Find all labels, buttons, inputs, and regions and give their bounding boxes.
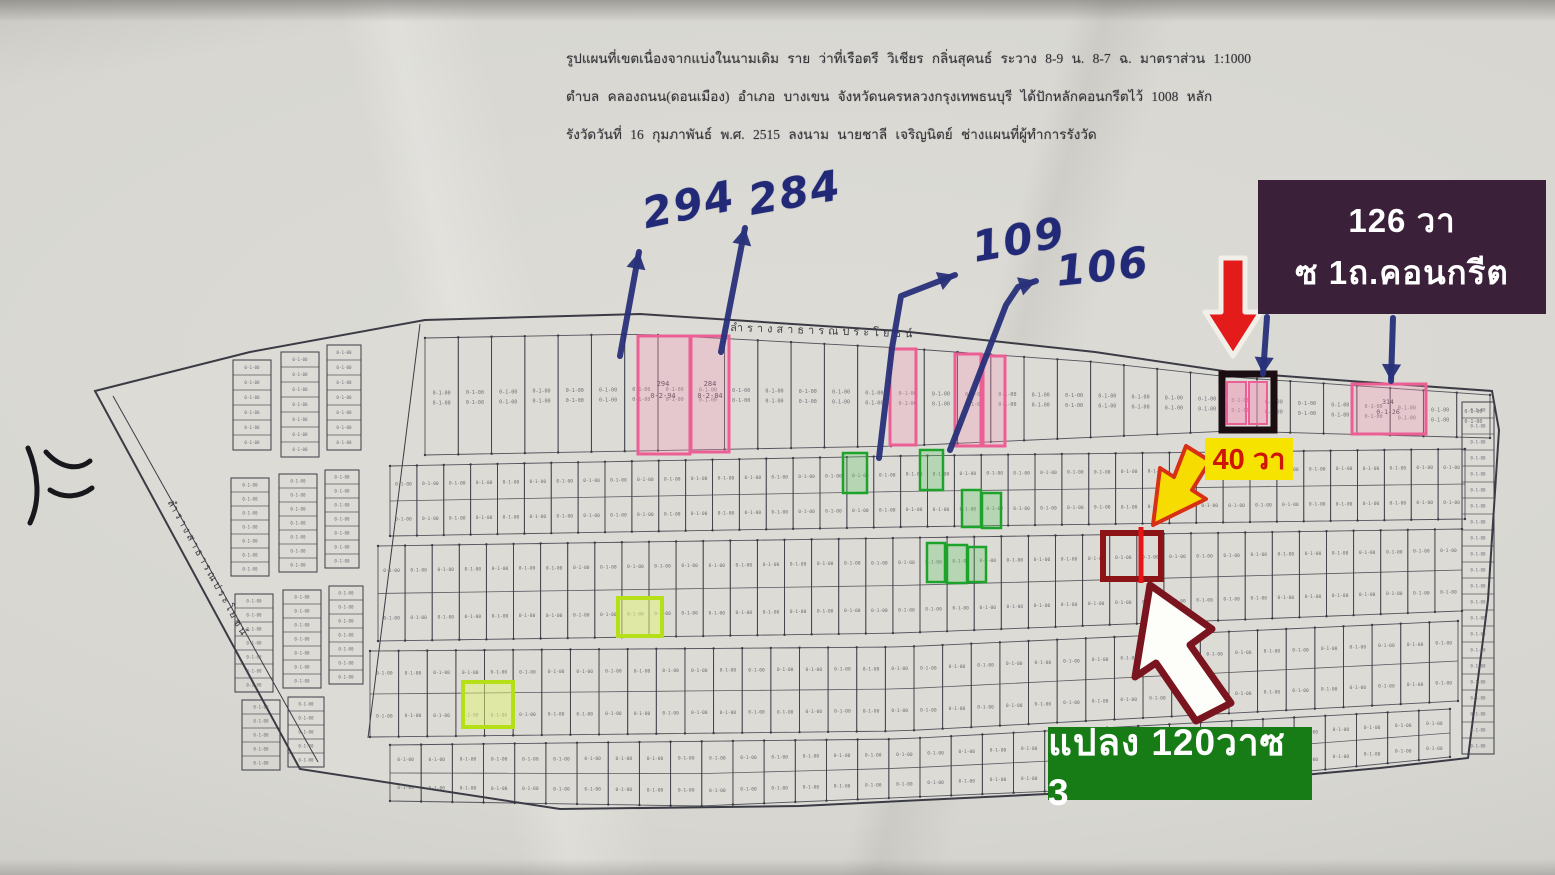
svg-text:0-1-00: 0-1-00 [246, 599, 262, 604]
svg-text:0-1-00: 0-1-00 [1098, 404, 1116, 410]
svg-text:0-1-00: 0-1-00 [1264, 689, 1281, 695]
svg-text:0-1-00: 0-1-00 [290, 563, 306, 568]
svg-text:0-1-00: 0-1-00 [1142, 555, 1159, 561]
svg-text:0-1-00: 0-1-00 [1032, 393, 1050, 399]
svg-text:0-1-00: 0-1-00 [898, 560, 915, 566]
svg-text:0-1-00: 0-1-00 [891, 666, 908, 672]
svg-text:0-1-00: 0-1-00 [1169, 554, 1186, 560]
svg-text:0-1-00: 0-1-00 [990, 747, 1007, 753]
svg-text:0-1-00: 0-1-00 [573, 565, 590, 571]
svg-text:0-1-00: 0-1-00 [1336, 501, 1353, 507]
svg-text:0-1-00: 0-1-00 [1132, 395, 1150, 401]
svg-text:0-1-00: 0-1-00 [246, 641, 262, 646]
svg-text:0-1-00: 0-1-00 [491, 757, 508, 763]
svg-text:0-1-00: 0-1-00 [338, 647, 354, 652]
svg-text:0-1-00: 0-1-00 [748, 710, 765, 716]
svg-text:0-1-00: 0-1-00 [691, 511, 708, 517]
svg-text:0-1-00: 0-1-00 [290, 549, 306, 554]
svg-text:0-1-00: 0-1-00 [376, 671, 393, 677]
svg-text:0-1-00: 0-1-00 [1395, 749, 1412, 755]
svg-text:0-1-00: 0-1-00 [338, 633, 354, 638]
svg-text:0-1-00: 0-1-00 [745, 475, 762, 481]
svg-text:0-1-00: 0-1-00 [336, 440, 352, 445]
svg-text:0-1-00: 0-1-00 [834, 667, 851, 673]
svg-text:0-1-00: 0-1-00 [298, 730, 314, 735]
svg-text:0-1-00: 0-1-00 [242, 553, 258, 558]
svg-text:0-1-00: 0-1-00 [466, 390, 484, 396]
svg-text:0-1-00: 0-1-00 [832, 400, 850, 406]
svg-text:0-1-00: 0-1-00 [292, 432, 308, 437]
svg-text:0-1-00: 0-1-00 [1349, 685, 1366, 691]
svg-text:0-1-00: 0-1-00 [476, 480, 493, 486]
svg-text:0-1-00: 0-1-00 [476, 515, 493, 521]
svg-text:0-1-00: 0-1-00 [244, 440, 260, 445]
callout-126wa-line1: 126 วา [1348, 195, 1455, 247]
svg-text:0-1-00: 0-1-00 [1228, 503, 1245, 509]
svg-text:0-1-00: 0-1-00 [428, 757, 445, 763]
svg-text:0-1-00: 0-1-00 [491, 786, 508, 792]
svg-text:0-1-00: 0-1-00 [662, 668, 679, 674]
svg-text:0-1-00: 0-1-00 [584, 756, 601, 762]
svg-text:0-1-00: 0-1-00 [745, 510, 762, 516]
svg-text:0-1-00: 0-1-00 [803, 785, 820, 791]
svg-text:0-1-00: 0-1-00 [863, 708, 880, 714]
svg-text:0-1-00: 0-1-00 [530, 514, 547, 520]
svg-text:0-1-00: 0-1-00 [546, 565, 563, 571]
svg-text:0-1-00: 0-1-00 [253, 747, 269, 752]
svg-text:0-1-00: 0-1-00 [338, 605, 354, 610]
svg-text:0-1-00: 0-1-00 [605, 669, 622, 675]
title-line-2: ตำบล คลองถนน(ดอนเมือง) อำเภอ บางเขน จังห… [566, 78, 1166, 116]
svg-text:0-1-00: 0-1-00 [925, 607, 942, 613]
svg-text:0-1-00: 0-1-00 [1120, 697, 1137, 703]
svg-text:0-1-00: 0-1-00 [927, 751, 944, 757]
svg-text:0-1-00: 0-1-00 [852, 508, 869, 514]
svg-text:0-1-00: 0-1-00 [1032, 403, 1050, 409]
svg-text:0-1-00: 0-1-00 [1349, 645, 1366, 651]
svg-text:0-1-00: 0-1-00 [763, 562, 780, 568]
svg-text:0-1-00: 0-1-00 [1201, 503, 1218, 509]
svg-text:0-1-00: 0-1-00 [522, 786, 539, 792]
title-line-1: รูปแผนที่เขตเนื่องจากแบ่งในนามเดิม ราย ว… [566, 40, 1166, 78]
svg-text:0-1-00: 0-1-00 [803, 754, 820, 760]
svg-text:0-1-00: 0-1-00 [1470, 568, 1486, 573]
photo-of-survey-map: 0-1-000-1-000-1-000-1-000-1-000-1-000-1-… [0, 0, 1555, 875]
svg-text:0-1-00: 0-1-00 [1094, 505, 1111, 511]
svg-text:0-1-00: 0-1-00 [790, 609, 807, 615]
svg-text:0-1-00: 0-1-00 [1264, 649, 1281, 655]
svg-text:0-1-00: 0-1-00 [664, 476, 681, 482]
svg-text:0-1-00: 0-1-00 [1331, 412, 1349, 418]
svg-text:0-1-00: 0-1-00 [986, 471, 1003, 477]
svg-text:0-1-00: 0-1-00 [1470, 632, 1486, 637]
svg-text:0-1-00: 0-1-00 [334, 545, 350, 550]
svg-text:0-1-00: 0-1-00 [1431, 417, 1449, 423]
svg-text:0-1-00: 0-1-00 [294, 609, 310, 614]
callout-120wa-tag: แปลง 120วาซ 3 [1048, 727, 1312, 800]
svg-text:0-1-00: 0-1-00 [1007, 604, 1024, 610]
svg-text:0-1-00: 0-1-00 [298, 702, 314, 707]
svg-text:0-1-00: 0-1-00 [491, 670, 508, 676]
svg-text:0-1-00: 0-1-00 [616, 756, 633, 762]
callout-126wa-line2: ซ 1ถ.คอนกรีต [1295, 247, 1509, 299]
svg-text:0-1-00: 0-1-00 [428, 785, 445, 791]
svg-text:0-1-00: 0-1-00 [290, 493, 306, 498]
svg-text:0-1-00: 0-1-00 [1440, 589, 1457, 595]
svg-text:0-1-00: 0-1-00 [817, 561, 834, 567]
pink-plot-in-black-outline [1227, 382, 1246, 424]
svg-text:0-1-00: 0-1-00 [708, 610, 725, 616]
svg-text:0-1-00: 0-1-00 [637, 477, 654, 483]
svg-text:0-1-00: 0-1-00 [1470, 600, 1486, 605]
svg-text:0-1-00: 0-1-00 [927, 780, 944, 786]
svg-text:0-1-00: 0-1-00 [246, 669, 262, 674]
svg-text:0-1-00: 0-1-00 [1198, 407, 1216, 413]
svg-text:0-1-00: 0-1-00 [336, 395, 352, 400]
svg-text:0-1-00: 0-1-00 [740, 755, 757, 761]
svg-text:0-1-00: 0-1-00 [771, 754, 788, 760]
svg-text:0-1-00: 0-1-00 [1363, 501, 1380, 507]
svg-text:0-1-00: 0-1-00 [1149, 695, 1166, 701]
svg-text:0-1-00: 0-1-00 [1298, 411, 1316, 417]
svg-text:0-1-00: 0-1-00 [576, 711, 593, 717]
svg-text:0-1-00: 0-1-00 [1278, 595, 1295, 601]
svg-text:0-1-00: 0-1-00 [1378, 643, 1395, 649]
svg-text:0-1-00: 0-1-00 [691, 710, 708, 716]
svg-text:0-1-00: 0-1-00 [334, 531, 350, 536]
svg-text:0-1-00: 0-1-00 [1333, 727, 1350, 733]
svg-text:0-1-00: 0-1-00 [292, 447, 308, 452]
svg-text:0-1-00: 0-1-00 [548, 669, 565, 675]
svg-text:0-1-00: 0-1-00 [871, 560, 888, 566]
svg-text:0-1-00: 0-1-00 [338, 591, 354, 596]
svg-text:0-1-00: 0-1-00 [519, 613, 536, 619]
svg-text:0-1-00: 0-1-00 [896, 752, 913, 758]
svg-text:0-1-00: 0-1-00 [805, 709, 822, 715]
svg-text:0-1-00: 0-1-00 [1165, 406, 1183, 412]
svg-text:0-1-00: 0-1-00 [422, 516, 439, 522]
svg-text:0-1-00: 0-1-00 [1206, 651, 1223, 657]
svg-text:0-1-00: 0-1-00 [798, 474, 815, 480]
svg-text:0-1-00: 0-1-00 [492, 566, 509, 572]
svg-text:0-1-00: 0-1-00 [503, 515, 520, 521]
pen-scribble [50, 488, 92, 496]
svg-text:0-1-00: 0-1-00 [253, 761, 269, 766]
svg-text:0-1-00: 0-1-00 [397, 785, 414, 791]
svg-text:0-1-00: 0-1-00 [865, 782, 882, 788]
svg-text:0-1-00: 0-1-00 [290, 535, 306, 540]
svg-text:0-1-00: 0-1-00 [1013, 506, 1030, 512]
svg-text:0-1-00: 0-1-00 [1470, 504, 1486, 509]
svg-text:0-1-00: 0-1-00 [433, 670, 450, 676]
svg-text:0-1-00: 0-1-00 [798, 509, 815, 515]
svg-text:0-1-00: 0-1-00 [1092, 698, 1109, 704]
svg-text:0-1-00: 0-1-00 [709, 755, 726, 761]
svg-text:0-1-00: 0-1-00 [834, 783, 851, 789]
callout-40wa-tag: 40 วา [1205, 438, 1293, 480]
svg-text:0-1-00: 0-1-00 [1470, 648, 1486, 653]
svg-text:0-1-00: 0-1-00 [777, 667, 794, 673]
svg-text:0-1-00: 0-1-00 [583, 513, 600, 519]
svg-text:0-1-00: 0-1-00 [763, 609, 780, 615]
svg-text:0-1-00: 0-1-00 [1470, 664, 1486, 669]
svg-text:0-1-00: 0-1-00 [906, 507, 923, 513]
svg-text:0-1-00: 0-1-00 [681, 611, 698, 617]
svg-text:0-1-00: 0-1-00 [1321, 646, 1338, 652]
svg-text:0-1-00: 0-1-00 [960, 471, 977, 477]
svg-text:0-1-00: 0-1-00 [566, 388, 584, 394]
svg-text:0-1-00: 0-1-00 [556, 478, 573, 484]
svg-text:0-1-00: 0-1-00 [338, 675, 354, 680]
svg-text:0-1-00: 0-1-00 [573, 612, 590, 618]
svg-text:0-1-00: 0-1-00 [1470, 584, 1486, 589]
svg-text:0-1-00: 0-1-00 [600, 612, 617, 618]
svg-text:0-1-00: 0-1-00 [1115, 555, 1132, 561]
svg-text:0-1-00: 0-1-00 [896, 781, 913, 787]
svg-text:0-1-00: 0-1-00 [879, 508, 896, 514]
svg-text:0-1-00: 0-1-00 [1332, 550, 1349, 556]
svg-text:0-1-00: 0-1-00 [1061, 556, 1078, 562]
svg-text:0-1-00: 0-1-00 [242, 497, 258, 502]
svg-text:0-1-00: 0-1-00 [1386, 549, 1403, 555]
callout-40wa-text: 40 วา [1213, 436, 1286, 482]
svg-text:0-1-00: 0-1-00 [1198, 397, 1216, 403]
svg-text:0-1-00: 0-1-00 [1416, 500, 1433, 506]
svg-text:0-1-00: 0-1-00 [1364, 725, 1381, 731]
svg-text:0-1-00: 0-1-00 [437, 614, 454, 620]
title-line-3: รังวัดวันที่ 16 กุมภาพันธ์ พ.ศ. 2515 ลงน… [566, 116, 1166, 154]
svg-text:0-1-00: 0-1-00 [556, 514, 573, 520]
svg-text:0-1-00: 0-1-00 [1321, 686, 1338, 692]
svg-text:0-1-00: 0-1-00 [334, 475, 350, 480]
svg-text:0-1-00: 0-1-00 [1426, 721, 1443, 727]
svg-text:0-1-00: 0-1-00 [298, 744, 314, 749]
svg-text:0-1-00: 0-1-00 [530, 479, 547, 485]
svg-text:0-1-00: 0-1-00 [336, 380, 352, 385]
svg-text:0-1-00: 0-1-00 [1378, 683, 1395, 689]
svg-text:0-1-00: 0-1-00 [979, 605, 996, 611]
svg-text:0-1-00: 0-1-00 [1282, 502, 1299, 508]
svg-text:0-1-00: 0-1-00 [522, 756, 539, 762]
svg-text:0-1-00: 0-1-00 [1040, 470, 1057, 476]
svg-text:0-1-00: 0-1-00 [338, 619, 354, 624]
svg-text:0-1-00: 0-1-00 [336, 410, 352, 415]
svg-text:0-1-00: 0-1-00 [871, 608, 888, 614]
svg-text:0-1-00: 0-1-00 [395, 517, 412, 523]
svg-text:0-1-00: 0-1-00 [920, 665, 937, 671]
svg-text:0-1-00: 0-1-00 [294, 665, 310, 670]
svg-text:0-1-00: 0-1-00 [466, 400, 484, 406]
svg-text:0-1-00: 0-1-00 [584, 787, 601, 793]
svg-text:0-1-00: 0-1-00 [546, 613, 563, 619]
svg-text:0-1-00: 0-1-00 [405, 670, 422, 676]
svg-text:0-1-00: 0-1-00 [1332, 593, 1349, 599]
svg-text:0-1-00: 0-1-00 [422, 481, 439, 487]
callout-126wa-box: 126 วา ซ 1ถ.คอนกรีต [1258, 180, 1546, 314]
svg-text:0-1-00: 0-1-00 [253, 719, 269, 724]
svg-text:0-1-00: 0-1-00 [294, 651, 310, 656]
svg-text:0-1-00: 0-1-00 [765, 399, 783, 405]
svg-text:0-1-00: 0-1-00 [1416, 465, 1433, 471]
svg-text:0-1-00: 0-1-00 [1298, 401, 1316, 407]
svg-text:0-1-00: 0-1-00 [1013, 470, 1030, 476]
svg-text:0-1-00: 0-1-00 [1035, 701, 1052, 707]
svg-text:0-1-00: 0-1-00 [298, 716, 314, 721]
svg-text:0-1-00: 0-1-00 [736, 562, 753, 568]
svg-text:0-1-00: 0-1-00 [1359, 550, 1376, 556]
svg-text:0-1-00: 0-1-00 [708, 563, 725, 569]
svg-text:0-1-00: 0-1-00 [383, 615, 400, 621]
svg-text:0-1-00: 0-1-00 [548, 712, 565, 718]
svg-text:0-1-00: 0-1-00 [244, 380, 260, 385]
svg-text:0-1-00: 0-1-00 [1386, 591, 1403, 597]
svg-text:0-1-00: 0-1-00 [1364, 751, 1381, 757]
svg-text:0-1-00: 0-1-00 [720, 710, 737, 716]
svg-text:0-1-00: 0-1-00 [662, 711, 679, 717]
svg-text:0-1-00: 0-1-00 [503, 479, 520, 485]
svg-text:0-1-00: 0-1-00 [777, 709, 794, 715]
svg-text:0-1-00: 0-1-00 [1470, 744, 1486, 749]
svg-text:0-1-00: 0-1-00 [865, 400, 883, 406]
svg-text:0-1-00: 0-1-00 [1440, 548, 1457, 554]
svg-text:0-1-00: 0-1-00 [771, 474, 788, 480]
svg-text:0-1-00: 0-1-00 [879, 472, 896, 478]
svg-text:0-1-00: 0-1-00 [1006, 703, 1023, 709]
svg-text:0-1-00: 0-1-00 [383, 568, 400, 574]
svg-text:0-1-00: 0-1-00 [519, 712, 536, 718]
svg-text:0-1-00: 0-1-00 [1470, 488, 1486, 493]
svg-text:0-1-00: 0-1-00 [1305, 594, 1322, 600]
svg-text:0-1-00: 0-1-00 [765, 389, 783, 395]
pen-scribble [46, 452, 90, 467]
svg-text:0-1-00: 0-1-00 [1395, 723, 1412, 729]
svg-text:0-1-00: 0-1-00 [242, 567, 258, 572]
svg-text:0-1-00: 0-1-00 [1292, 688, 1309, 694]
svg-text:0-1-00: 0-1-00 [253, 733, 269, 738]
svg-text:0-1-00: 0-1-00 [1470, 616, 1486, 621]
svg-text:0-1-00: 0-1-00 [433, 713, 450, 719]
svg-text:0-1-00: 0-1-00 [634, 711, 651, 717]
svg-text:0-1-00: 0-1-00 [790, 562, 807, 568]
svg-text:0-1-00: 0-1-00 [1121, 469, 1138, 475]
svg-text:0-1-00: 0-1-00 [1431, 407, 1449, 413]
svg-text:0-1-00: 0-1-00 [691, 476, 708, 482]
svg-text:0-1-00: 0-1-00 [1470, 696, 1486, 701]
svg-text:0-1-00: 0-1-00 [891, 708, 908, 714]
svg-text:0-1-00: 0-1-00 [242, 511, 258, 516]
svg-text:0-1-00: 0-1-00 [740, 787, 757, 793]
svg-text:0-1-00: 0-1-00 [1063, 658, 1080, 664]
svg-text:0-1-00: 0-1-00 [678, 756, 695, 762]
svg-text:0-1-00: 0-1-00 [465, 614, 482, 620]
svg-text:0-1-00: 0-1-00 [1470, 440, 1486, 445]
svg-text:0-1-00: 0-1-00 [405, 713, 422, 719]
svg-text:0-1-00: 0-1-00 [1278, 552, 1295, 558]
svg-text:0-1-00: 0-1-00 [1426, 746, 1443, 752]
svg-text:0-1-00: 0-1-00 [292, 417, 308, 422]
svg-text:0-1-00: 0-1-00 [664, 512, 681, 518]
svg-text:0-1-00: 0-1-00 [462, 670, 479, 676]
svg-text:0-1-00: 0-1-00 [292, 402, 308, 407]
svg-text:0-1-00: 0-1-00 [532, 389, 550, 395]
svg-text:0-1-00: 0-1-00 [336, 425, 352, 430]
svg-text:0-1-00: 0-1-00 [1470, 728, 1486, 733]
svg-text:0-1-00: 0-1-00 [242, 539, 258, 544]
svg-text:0-1-00: 0-1-00 [294, 637, 310, 642]
svg-text:0-1-00: 0-1-00 [576, 669, 593, 675]
svg-text:0-1-00: 0-1-00 [634, 668, 651, 674]
svg-text:0-1-00: 0-1-00 [499, 399, 517, 405]
pen-scribble [28, 448, 37, 523]
svg-text:0-1-00: 0-1-00 [460, 757, 477, 763]
svg-text:0-1-00: 0-1-00 [825, 509, 842, 515]
svg-text:0-1-00: 0-1-00 [242, 525, 258, 530]
callout-120wa-text: แปลง 120วาซ 3 [1048, 713, 1312, 814]
svg-text:0-1-00: 0-1-00 [553, 756, 570, 762]
svg-text:0-1-00: 0-1-00 [1470, 552, 1486, 557]
svg-text:0-1-00: 0-1-00 [1021, 776, 1038, 782]
svg-text:0-1-00: 0-1-00 [532, 399, 550, 405]
svg-text:0-1-00: 0-1-00 [610, 513, 627, 519]
svg-text:0-1-00: 0-1-00 [290, 479, 306, 484]
svg-text:0-1-00: 0-1-00 [1115, 600, 1132, 606]
svg-text:0-1-00: 0-1-00 [566, 398, 584, 404]
svg-text:0-1-00: 0-1-00 [627, 564, 644, 570]
svg-text:0-1-00: 0-1-00 [492, 614, 509, 620]
svg-text:0-1-00: 0-1-00 [1470, 456, 1486, 461]
svg-text:0-1-00: 0-1-00 [334, 559, 350, 564]
svg-text:0-1-00: 0-1-00 [1034, 603, 1051, 609]
svg-text:0-1-00: 0-1-00 [1196, 553, 1213, 559]
svg-text:0-1-00: 0-1-00 [720, 668, 737, 674]
svg-text:0-1-00: 0-1-00 [1121, 504, 1138, 510]
svg-text:0-1-00: 0-1-00 [1165, 396, 1183, 402]
svg-text:0-1-00: 0-1-00 [460, 786, 477, 792]
svg-text:0-1-00: 0-1-00 [1067, 505, 1084, 511]
svg-text:0-1-00: 0-1-00 [1407, 682, 1424, 688]
svg-text:0-1-00: 0-1-00 [647, 787, 664, 793]
svg-text:0-1-00: 0-1-00 [718, 511, 735, 517]
svg-text:0-1-00: 0-1-00 [244, 395, 260, 400]
svg-text:0-1-00: 0-1-00 [246, 655, 262, 660]
svg-text:0-1-00: 0-1-00 [1006, 661, 1023, 667]
svg-text:0-1-00: 0-1-00 [395, 482, 412, 488]
svg-text:0-1-00: 0-1-00 [433, 391, 451, 397]
svg-text:0-1-00: 0-1-00 [1331, 402, 1349, 408]
svg-text:0-1-00: 0-1-00 [290, 507, 306, 512]
svg-text:0-1-00: 0-1-00 [1235, 691, 1252, 697]
svg-text:0-1-00: 0-1-00 [1305, 551, 1322, 557]
handwritten-106: 106 [1054, 237, 1152, 296]
svg-text:0-1-00: 0-1-00 [410, 567, 427, 573]
svg-text:0-1-00: 0-1-00 [336, 350, 352, 355]
svg-text:0-1-00: 0-1-00 [465, 567, 482, 573]
svg-text:0-1-00: 0-1-00 [799, 399, 817, 405]
svg-text:0-1-00: 0-1-00 [1250, 552, 1267, 558]
svg-text:0-1-00: 0-1-00 [298, 758, 314, 763]
svg-text:0-1-00: 0-1-00 [600, 564, 617, 570]
svg-text:0-1-00: 0-1-00 [1250, 596, 1267, 602]
svg-text:0-1-00: 0-1-00 [1292, 647, 1309, 653]
svg-text:0-1-00: 0-1-00 [290, 521, 306, 526]
svg-text:0-1-00: 0-1-00 [437, 567, 454, 573]
svg-text:0-1-00: 0-1-00 [334, 489, 350, 494]
svg-text:0-1-00: 0-1-00 [294, 595, 310, 600]
svg-text:0-1-00: 0-1-00 [599, 397, 617, 403]
svg-text:0-1-00: 0-1-00 [637, 512, 654, 518]
svg-text:0-1-00: 0-1-00 [449, 516, 466, 522]
svg-text:0-1-00: 0-1-00 [244, 425, 260, 430]
